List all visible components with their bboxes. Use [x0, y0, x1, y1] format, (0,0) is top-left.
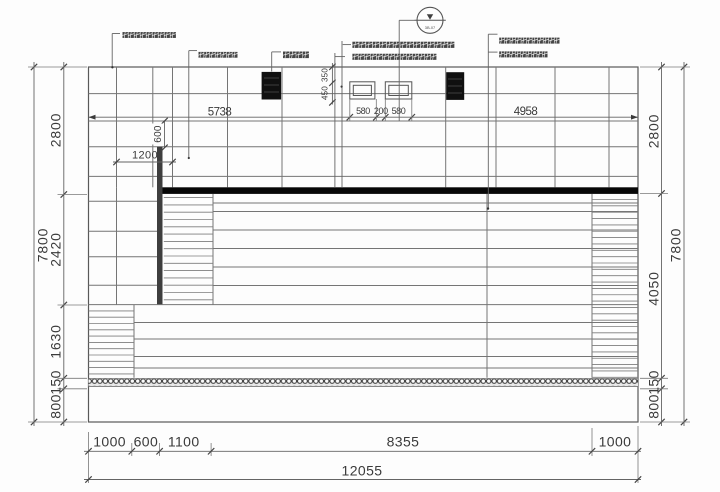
svg-text:600: 600 [134, 434, 159, 450]
svg-text:350: 350 [321, 68, 330, 82]
svg-text:800: 800 [646, 394, 662, 419]
svg-text:580: 580 [392, 106, 406, 116]
svg-text:200: 200 [374, 106, 388, 116]
svg-text:2420: 2420 [48, 232, 64, 266]
svg-text:8355: 8355 [387, 434, 420, 450]
svg-text:150: 150 [48, 370, 64, 395]
svg-text:3B-07: 3B-07 [425, 25, 435, 30]
svg-text:1200: 1200 [132, 150, 158, 162]
svg-text:12055: 12055 [342, 463, 383, 479]
svg-text:7800: 7800 [668, 228, 684, 262]
svg-text:4050: 4050 [646, 271, 662, 305]
svg-text:1000: 1000 [93, 434, 126, 450]
svg-text:600: 600 [153, 125, 164, 143]
svg-text:1630: 1630 [48, 324, 64, 358]
svg-text:150: 150 [646, 370, 662, 395]
svg-text:2800: 2800 [646, 114, 662, 148]
svg-text:450: 450 [321, 86, 330, 100]
svg-text:580: 580 [356, 106, 370, 116]
svg-text:800: 800 [48, 394, 64, 419]
svg-text:1100: 1100 [168, 434, 200, 450]
svg-text:2800: 2800 [48, 113, 64, 147]
svg-text:1000: 1000 [599, 434, 632, 450]
svg-text:4958: 4958 [514, 106, 538, 118]
svg-text:5738: 5738 [208, 106, 232, 118]
